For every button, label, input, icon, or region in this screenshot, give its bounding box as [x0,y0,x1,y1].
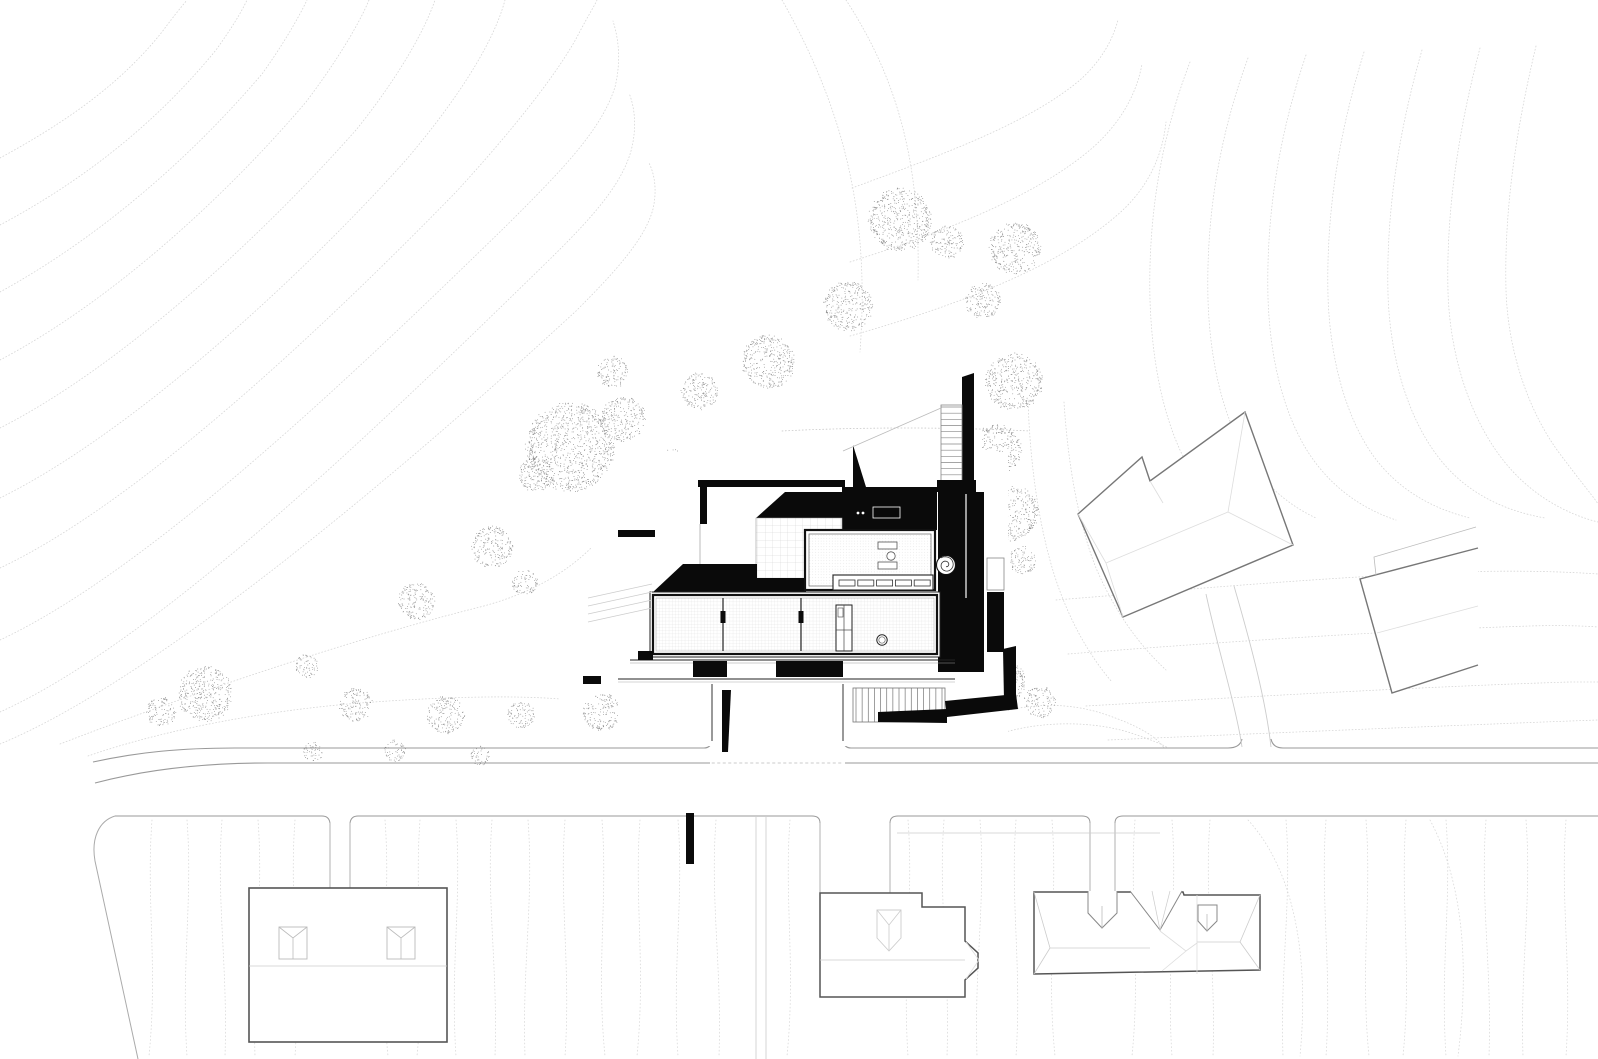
site-plan-drawing [0,0,1598,1059]
site-plan-canvas [0,0,1598,1059]
main-house-layer [583,368,1030,763]
